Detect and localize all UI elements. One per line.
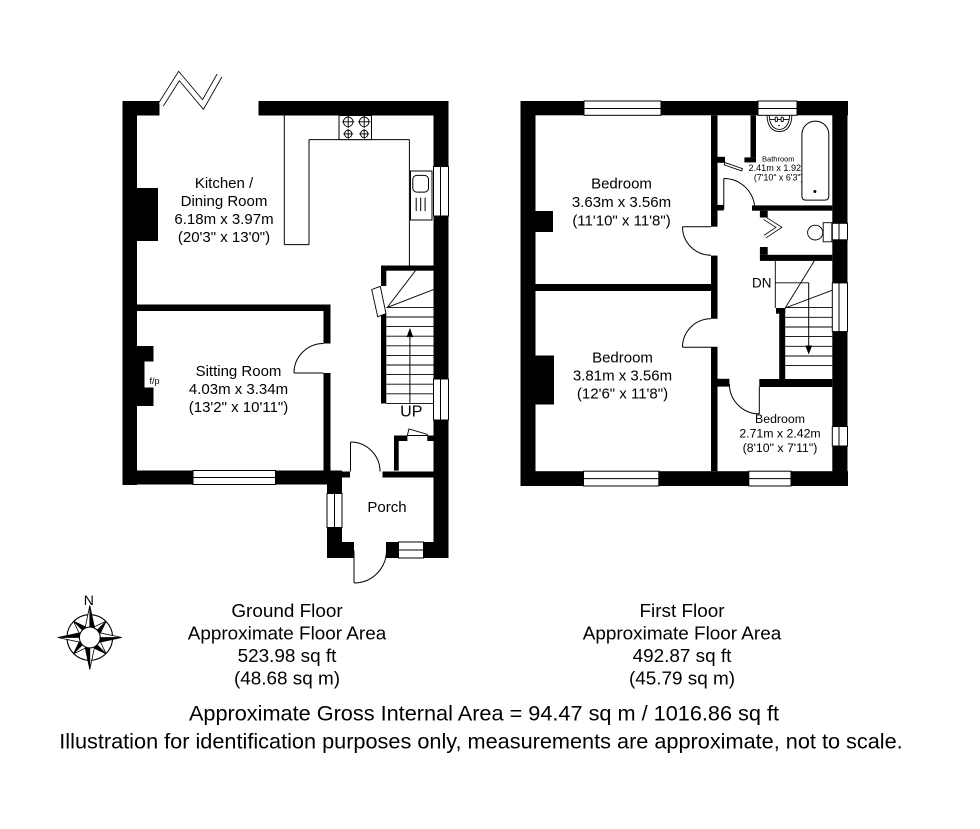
- svg-text:Kitchen /: Kitchen /: [195, 175, 254, 192]
- svg-text:Approximate Gross Internal Are: Approximate Gross Internal Area = 94.47 …: [189, 701, 779, 726]
- svg-text:First Floor: First Floor: [639, 601, 724, 622]
- svg-text:3.63m x 3.56m: 3.63m x 3.56m: [572, 194, 671, 211]
- svg-text:Sitting Room: Sitting Room: [196, 363, 282, 380]
- svg-text:(20'3" x 13'0"): (20'3" x 13'0"): [178, 229, 270, 246]
- svg-text:(13'2" x 10'11"): (13'2" x 10'11"): [189, 399, 289, 416]
- svg-text:(48.68 sq m): (48.68 sq m): [234, 669, 340, 690]
- svg-text:492.87 sq ft: 492.87 sq ft: [633, 646, 732, 667]
- svg-text:6.18m x 3.97m: 6.18m x 3.97m: [174, 211, 273, 228]
- svg-text:Dining Room: Dining Room: [181, 193, 268, 210]
- svg-text:DN: DN: [752, 276, 772, 291]
- svg-text:f/p: f/p: [149, 376, 159, 386]
- svg-text:Bedroom: Bedroom: [755, 412, 805, 426]
- svg-text:Ground Floor: Ground Floor: [231, 601, 342, 622]
- svg-text:(11'10" x 11'8"): (11'10" x 11'8"): [572, 213, 670, 230]
- svg-text:Illustration for identificatio: Illustration for identification purposes…: [59, 729, 902, 754]
- svg-text:(45.79 sq m): (45.79 sq m): [629, 669, 735, 690]
- svg-text:(8'10" x 7'11"): (8'10" x 7'11"): [743, 441, 818, 455]
- svg-text:4.03m x 3.34m: 4.03m x 3.34m: [189, 381, 288, 398]
- svg-text:UP: UP: [400, 404, 422, 421]
- svg-text:(12'6" x 11'8"): (12'6" x 11'8"): [577, 385, 668, 402]
- svg-text:Approximate Floor Area: Approximate Floor Area: [583, 624, 782, 645]
- svg-text:Bedroom: Bedroom: [591, 176, 652, 193]
- svg-text:Approximate Floor Area: Approximate Floor Area: [188, 624, 387, 645]
- svg-text:Bedroom: Bedroom: [592, 349, 653, 366]
- svg-text:N: N: [84, 592, 94, 608]
- svg-text:3.81m x 3.56m: 3.81m x 3.56m: [573, 367, 672, 384]
- svg-text:523.98 sq ft: 523.98 sq ft: [238, 646, 337, 667]
- svg-text:2.71m x 2.42m: 2.71m x 2.42m: [739, 427, 820, 441]
- svg-text:Porch: Porch: [367, 499, 406, 516]
- svg-text:(7'10" x 6'3"): (7'10" x 6'3"): [754, 172, 804, 182]
